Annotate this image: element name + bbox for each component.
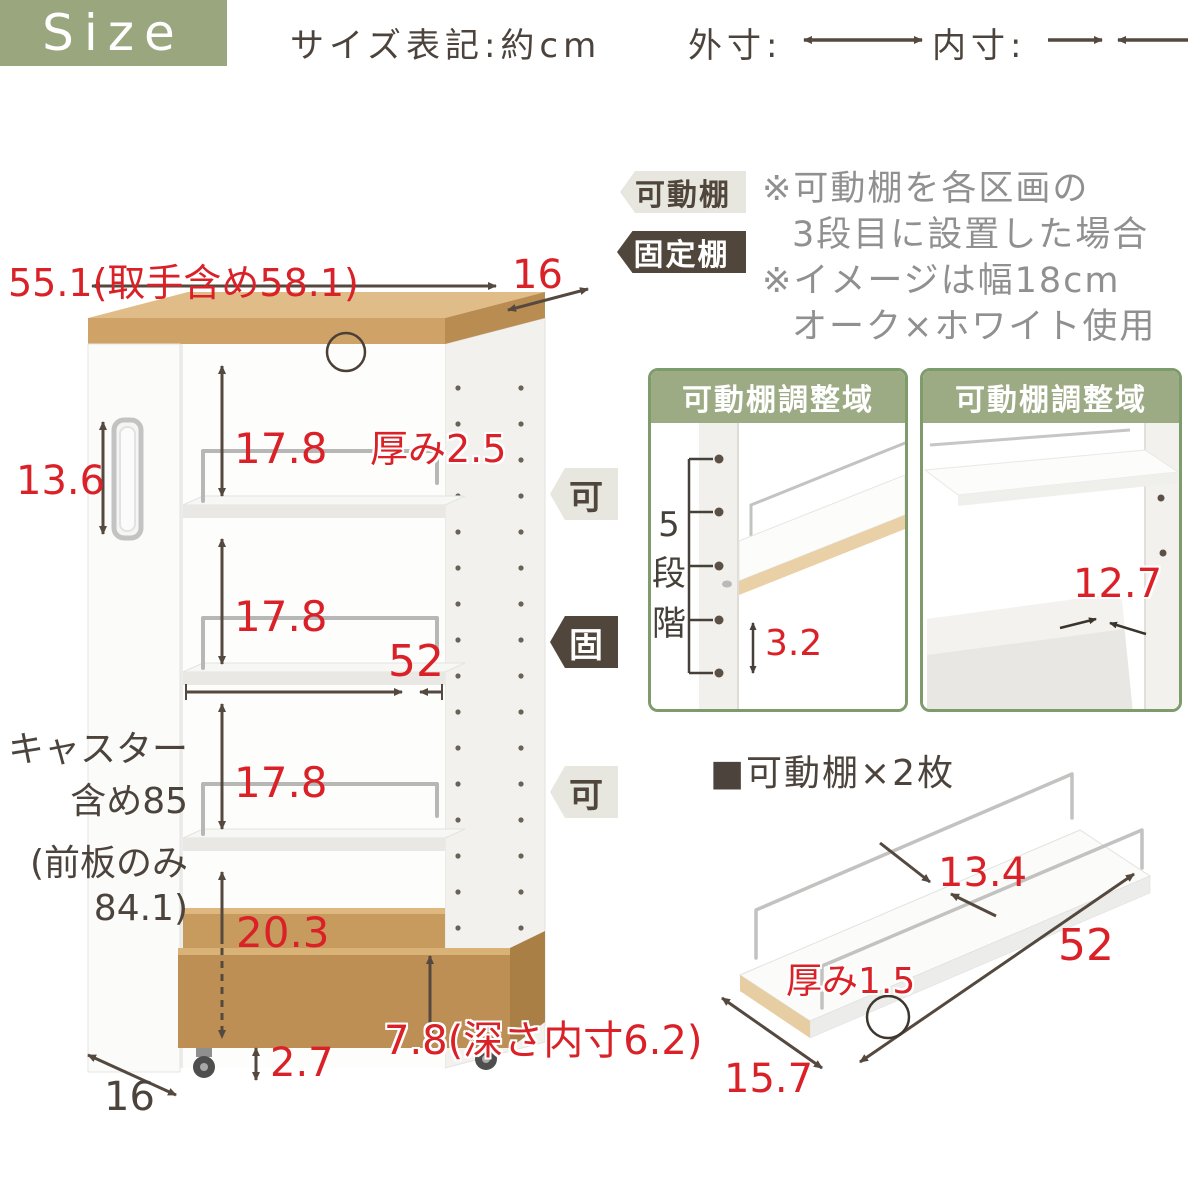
cart-illustration (88, 292, 545, 1078)
dim-handle-label: 13.6 (16, 458, 105, 504)
dim-shelf-depth-label: 15.7 (724, 1056, 813, 1102)
steps-label: 5段階 (651, 501, 687, 649)
dim-bottomgap-label: 20.3 (236, 908, 330, 957)
dim-top-depth-label: 16 (512, 252, 563, 298)
total-height-line2: 含め85 (0, 772, 188, 824)
size-heading: Size (0, 0, 227, 66)
dim-pitch-label: 3.2 (765, 623, 822, 664)
note-line-1: ※可動棚を各区画の (762, 160, 1089, 211)
dim-gap2-label: 17.8 (234, 592, 328, 641)
movable-shelf-tag: 可動棚 (620, 171, 746, 213)
note-line-2: 3段目に設置した場合 (792, 206, 1149, 257)
total-height-line1: キャスター (0, 720, 188, 772)
inset-left-title: 可動棚調整域 (651, 371, 905, 423)
dim-bottom-depth-label: 16 (104, 1074, 155, 1120)
dim-thickness-label: 厚み2.5 (370, 418, 506, 473)
outer-dim-label: 外寸: (688, 18, 782, 67)
dim-shelf-innerdepth-label: 13.4 (938, 850, 1027, 896)
inset-left-photo (651, 423, 905, 709)
note-line-3: ※イメージは幅18cm (762, 252, 1121, 303)
note-line-4: オーク×ホワイト使用 (792, 298, 1156, 349)
dim-gap3-label: 17.8 (234, 758, 328, 807)
dim-width-label: 55.1(取手含め58.1) (8, 252, 359, 307)
size-diagram-page: Size サイズ表記:約cm 外寸: 内寸: 可動棚 固定棚 ※可動棚を各区画の… (0, 0, 1200, 1200)
dim-innerdepth-label: 12.7 (1073, 561, 1162, 607)
dim-shelf-length-label: 52 (1058, 920, 1114, 971)
shelf-detail-heading: ■可動棚×2枚 (710, 744, 955, 796)
caster-wheel (193, 1048, 215, 1078)
dim-gap1-label: 17.8 (234, 424, 328, 473)
fixed-shelf-tag: 固定棚 (617, 231, 746, 273)
dim-caster-label: 2.7 (270, 1040, 334, 1086)
dim-innerwidth-label: 52 (388, 636, 444, 687)
inset-right-title: 可動棚調整域 (923, 371, 1179, 423)
cart-top-front (88, 318, 445, 344)
dim-shelf-thickness-label: 厚み1.5 (786, 952, 915, 1004)
inner-dim-label: 内寸: (932, 18, 1026, 67)
total-height-line3: (前板のみ (0, 834, 188, 886)
dim-boxheight-label: 7.8(深さ内寸6.2) (384, 1008, 702, 1066)
size-notation-label: サイズ表記:約cm (290, 18, 601, 67)
dim-shelf-innerdepth-a (880, 843, 930, 882)
adjust-range-inset-left: 可動棚調整域 (648, 368, 908, 712)
total-height-line4: 84.1) (0, 888, 188, 929)
adjust-range-inset-right: 可動棚調整域 (920, 368, 1182, 712)
